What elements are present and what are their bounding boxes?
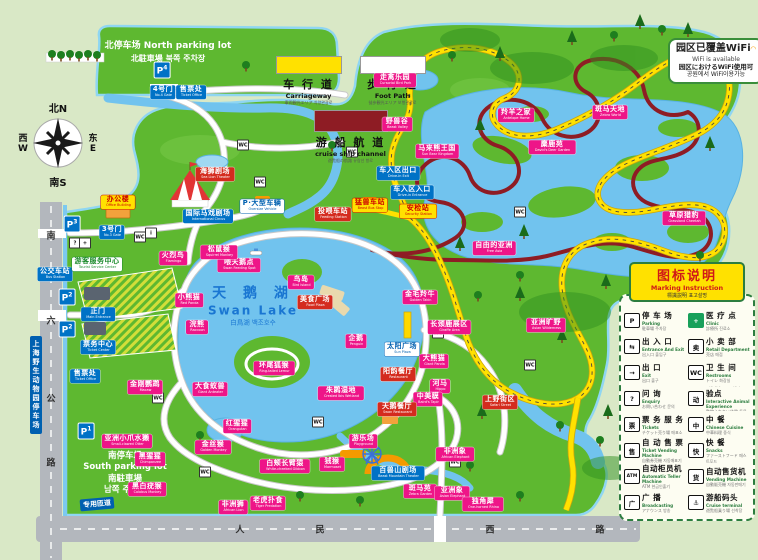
legend-item-sub: 自動販売機 자동판매기 [706, 482, 746, 488]
automatic-teller-machine-icon: ATM [624, 469, 640, 484]
map-label-en: Golden Takin [407, 299, 433, 303]
map-label-en: Sun Plaza [389, 351, 415, 355]
map-label-chimpanzee: 黑猩猩Chimpanzee [135, 452, 165, 466]
legend-item-vending-machine: 货自动售货机Vending Machine自動販売機 자동판매기 [688, 464, 750, 489]
map-label-en: Asian Wilderness [532, 327, 561, 331]
map-label-en: Ticket Office [74, 378, 95, 382]
poi-wc-13: WC [524, 360, 536, 371]
legend-item-en: Ticket Vending Machine [642, 448, 686, 458]
map-label-orangutan: 红猩猩Orangutan [223, 419, 251, 433]
map-label-en: Red Panda [179, 302, 198, 306]
tickets-icon: 票 [624, 417, 640, 432]
map-label-en: Office Building [106, 204, 131, 208]
map-label-en: Orangutan [227, 428, 246, 432]
wifi-line1: 园区已覆盖WiFi◠ [672, 43, 758, 56]
map-label-en: Small-clawed Otter [108, 443, 146, 447]
legend-item-cruise-terminal: ⚓游船码头Cruise terminal遊覧船乗り場 선착장 [688, 490, 750, 515]
map-label-crested-ibis-wetland: 朱鹮湿地Crested Ibis Wetland [318, 386, 364, 400]
parking-icon: P [624, 313, 640, 328]
legend-item-text: 票 务 服 务Ticketsチケット売り場 매표소 [642, 414, 683, 436]
map-label-white-cheeked-gibbon: 白颊长臂猿White-cheeked Gibbon [260, 459, 310, 473]
parking-badge-p3: P3 [64, 216, 81, 233]
icon-legend-title-en: Marking Instruction [631, 284, 743, 292]
vending-machine-icon: 货 [688, 469, 704, 484]
legend-item-cn: 广 播 [642, 492, 673, 503]
entrance-and-exit-icon: ⇆ [624, 339, 640, 354]
poi-wc-9: WC [514, 207, 526, 218]
map-label-free-asia: 自由的亚洲Free Asia [473, 241, 516, 255]
map-label-en: Hippo [434, 388, 447, 392]
map-label-david-s-deer-garden: 麋鹿苑David's Deer Garden [529, 140, 576, 154]
map-label-ring-tailed-lemur: 环尾狐猴Ring-tailed Lemur [254, 361, 295, 375]
map-label-en: Baird's Tapir [418, 401, 439, 405]
parking-badge-p2: P2 [59, 289, 76, 306]
legend-item-sub: アナウンス 방송 [642, 508, 673, 514]
legend-item-sub: 自動券売機 자동매표기 [642, 458, 686, 463]
map-label-en: Macaw [132, 389, 158, 393]
map-label-en: Feeding Station [320, 216, 347, 220]
legend-item-exit: →出 口Exit出口 출구 [624, 360, 686, 385]
wifi-line2: WiFi is available [672, 56, 758, 64]
legend-item-en: Retail Department [706, 347, 750, 352]
poi-wc-4: WC [254, 177, 266, 188]
carriageway-swatch [276, 56, 342, 74]
legend-item-sub: 遊覧船乗り場 선착장 [706, 508, 742, 514]
map-label-penguin: 企鹅Penguin [346, 334, 367, 348]
legend-item-restrooms: WC卫 生 间Restroomsトイレ 화장실 [688, 360, 750, 385]
wifi-notice: 园区已覆盖WiFi◠ WiFi is available 园区におけるWiFi使… [668, 38, 758, 84]
map-label-golden-monkey: 金丝猴Golden Monkey [195, 440, 231, 454]
legend-item-automatic-teller-machine: ATM自动柜员机Automatic Teller MachineATM 현금인출… [624, 464, 686, 489]
carriageway-label-cn: 车 行 道 [276, 76, 342, 92]
legend-item-sub: 診療所 진료소 [706, 326, 736, 332]
legend-item-text: 自动售货机Vending Machine自動販売機 자동판매기 [706, 466, 746, 488]
map-label-beast-bus-stop: 猛兽车站Beast Bus Stop [352, 198, 387, 212]
map-label-en: Beast Bus Stop [357, 207, 383, 211]
legend-item-sub: 駐車場 주차장 [642, 326, 672, 332]
icon-legend-title-cn: 图标说明 [631, 265, 743, 284]
map-label-ticket-center: 票务中心Ticket Center [81, 340, 116, 354]
map-label-swan-restaurant: 天鹅餐厅Swan Restaurant [378, 402, 417, 416]
map-label-en: Golden Monkey [200, 449, 226, 453]
map-label-en: Penguin [349, 343, 363, 347]
legend-item-sub: 出口 출구 [642, 378, 661, 384]
footpath-label-en: Foot Path [360, 92, 426, 100]
legend-item-text: 医 疗 点Clinic診療所 진료소 [706, 310, 736, 332]
enquiry-icon: ? [624, 391, 640, 406]
map-label-en: Main Entrance [86, 316, 110, 320]
map-label-en: Swan Feeding Spot [223, 267, 255, 271]
map-label-en: Cursorial Bird Park [379, 82, 410, 86]
map-label-drive-in-exit: 车入区出口Drive-in Exit [377, 166, 420, 180]
legend-item-cn: 出 入 口 [642, 336, 684, 347]
map-label-en: No.4 Gate [154, 94, 171, 98]
legend-item-chinese-cuisine: 中中 餐Chinese Cuisine中華料理 중식 [688, 412, 750, 437]
exit-icon: → [624, 365, 640, 380]
legend-item-interactive-animal-experience: 动动物互动体验点Interactive Animal Experience動物ふ… [688, 386, 750, 411]
map-label-raccoon: 浣熊Raccoon [186, 320, 208, 334]
legend-item-cn: 票 务 服 务 [642, 414, 683, 425]
carriageway-label-sub: 車両観光エリア 차량관광로 [276, 100, 342, 106]
map-label-asian-wilderness: 亚洲旷野Asian Wilderness [526, 318, 565, 332]
legend-item-sub: ATM 현금인출기 [642, 484, 686, 489]
map-label-bus-station: 公交车站Bus Station [38, 267, 73, 281]
map-label-en: Antelope Home [503, 117, 529, 121]
map-label-en: Drive-in Exit [382, 175, 414, 179]
icon-legend-title-sub: 標識説明 표고설명 [631, 292, 743, 299]
legend-item-text: 自 动 售 票Ticket Vending Machine自動券売機 자동매표기 [642, 438, 686, 463]
map-label-tiger-predation: 老虎扑食Tiger Predation [250, 496, 285, 510]
map-label-drive-in-entrance: 车入区入口Drive-in Entrance [391, 185, 434, 199]
map-label-oversize-vehicle: P·大型车辆Oversize Vehicle [240, 199, 284, 213]
map-label-food-plaza: 美食广场Food Plaza [298, 295, 333, 309]
legend-item-text: 停 车 场Parking駐車場 주차장 [642, 310, 672, 332]
legend-item-cn: 自 动 售 票 [642, 438, 686, 448]
map-label-en: Colobus Monkey [133, 491, 161, 495]
map-label-en: Giant Panda [424, 363, 445, 367]
map-label-small-clawed-otter: 亚洲小爪水獭Small-clawed Otter [102, 434, 152, 448]
map-label-hippo: 河马Hippo [430, 379, 450, 393]
map-label-safari-street: 上野街区Safari Street [483, 395, 518, 409]
restrooms-icon: WC [688, 365, 704, 380]
map-label-no-3-gate: 3号门No.3 Gate [99, 225, 124, 239]
map-label-security-station: 安检站Security Station [400, 204, 437, 218]
map-label-zebra-garden: 斑马苑Zebra Garden [404, 484, 437, 498]
map-label-red-panda: 小熊猫Red Panda [175, 293, 203, 307]
ramp-sign: 专用匝道 [80, 497, 115, 512]
map-label-macaw: 金刚鹦鹉Macaw [128, 380, 163, 394]
parking-badge-p2: P2 [59, 321, 76, 338]
legend-item-en: Vending Machine [706, 477, 746, 482]
legend-item-sub: チケット売り場 매표소 [642, 430, 683, 436]
wifi-line3: 园区におけるWiFi使用可 [672, 63, 758, 71]
ticket-vending-machine-icon: 售 [624, 443, 640, 458]
map-label-one-horned-rhino: 独角犀One-horned Rhino [462, 497, 503, 511]
north-parking-line1: 北停车场 North parking lot [105, 40, 232, 53]
west-road-char: 南 [46, 229, 55, 242]
legend-item-cn: 自动售货机 [706, 466, 746, 477]
legend-item-sub: トイレ 화장실 [706, 378, 736, 384]
map-label-en: No.3 Gate [103, 234, 120, 238]
legend-item-text: 小 卖 部Retail Department売店 매점 [706, 336, 750, 358]
icon-legend-grid: P停 车 场Parking駐車場 주차장+医 疗 点Clinic診療所 진료소⇆… [619, 294, 755, 521]
map-label-flamingo: 火烈鸟Flamingo [159, 251, 187, 265]
retail-department-icon: 卖 [688, 339, 704, 354]
legend-item-cn: 小 卖 部 [706, 336, 750, 347]
legend-item-en: Entrance And Exit [642, 347, 684, 352]
map-label-main-entrance: 正门Main Entrance [81, 307, 115, 321]
zoo-map: 北N 南S 西 W 东 E 北停车场 North parking lot 北駐車… [0, 0, 758, 560]
map-label-en: White-cheeked Gibbon [266, 468, 305, 472]
legend-item-text: 快 餐Snacksファーストフード 패스트푸드 [706, 438, 750, 463]
legend-item-clinic: +医 疗 点Clinic診療所 진료소 [688, 308, 750, 333]
chinese-cuisine-icon: 中 [688, 417, 704, 432]
wifi-line4: 공원에서 WiFi이용가능 [672, 71, 758, 79]
poi-wc-7: WC [312, 417, 324, 428]
map-label-en: Ticket Office [180, 94, 201, 98]
map-label-en: Tourist Service Center [78, 266, 116, 270]
map-label-cursorial-bird-park: 走禽乐园Cursorial Bird Park [374, 73, 416, 87]
map-label-giant-anteater: 大食蚁兽Giant Anteater [193, 382, 228, 396]
poi-wc-8: WC [199, 467, 211, 478]
legend-item-text: 出 入 口Entrance And Exit出入口 출입구 [642, 336, 684, 358]
legend-item-broadcasting: 广广 播Broadcastingアナウンス 방송 [624, 490, 686, 515]
legend-item-sub: 動物ふれあい体験 동물체험 [706, 409, 750, 412]
cruise-terminal-icon: ⚓ [688, 495, 704, 510]
map-label-en: Oversize Vehicle [246, 208, 279, 212]
legend-item-sub: お問い合わせ 문의 [642, 404, 675, 410]
map-label-feeding-station: 投喂车站Feeding Station [315, 207, 351, 221]
map-label-no-4-gate: 4号门No.4 Gate [150, 85, 175, 99]
map-label-en: Squirrel Monkey [205, 254, 232, 258]
map-label-en: Grassland Cheetah [668, 220, 700, 224]
south-road-char: 路 [595, 523, 604, 536]
map-label-ticket-office: 售票处Ticket Office [176, 85, 206, 99]
legend-item-text: 中 餐Chinese Cuisine中華料理 중식 [706, 414, 743, 436]
map-label-en: Zebra World [597, 114, 623, 118]
map-label-golden-takin: 金毛羚牛Golden Takin [403, 290, 438, 304]
legend-item-cn: 卫 生 间 [706, 362, 736, 373]
map-label-en: Zebra Garden [408, 493, 432, 497]
map-label-en: African Elephant [441, 456, 469, 460]
map-label-en: Security Station [404, 213, 431, 217]
legend-item-en: Cruise terminal [706, 503, 742, 508]
wifi-icon: ◠ [751, 45, 756, 53]
legend-item-text: 广 播Broadcastingアナウンス 방송 [642, 492, 673, 514]
legend-item-sub: 出入口 출입구 [642, 352, 684, 358]
map-label-en: Ticket Center [85, 349, 111, 353]
swan-lake-sub: 白鳥湖 백조호수 [208, 318, 298, 326]
map-label-international-circus: 国际马戏剧场International Circus [183, 209, 233, 223]
footpath-swatch [360, 56, 426, 74]
legend-carriageway: 车 行 道 Carriageway 車両観光エリア 차량관광로 [276, 56, 342, 106]
west-road-char: 六 [46, 314, 55, 327]
map-label-colobus-monkey: 黑白疣猴Colobus Monkey [128, 482, 166, 496]
legend-item-entrance-and-exit: ⇆出 入 口Entrance And Exit出入口 출입구 [624, 334, 686, 359]
map-label-en: Sea Lion Theater [201, 176, 230, 180]
legend-item-cn: 问 询 [642, 388, 675, 399]
legend-item-cn: 停 车 场 [642, 310, 672, 321]
legend-item-cn: 动物互动体验点 [706, 386, 750, 399]
interactive-animal-experience-icon: 动 [688, 391, 704, 406]
snacks-icon: 快 [688, 443, 704, 458]
map-label-en: Giant Anteater [197, 391, 223, 395]
map-label-en: One-horned Rhino [468, 506, 499, 510]
map-label-sun-plaza: 太阳广场Sun Plaza [385, 342, 420, 356]
legend-item-tickets: 票票 务 服 务Ticketsチケット売り場 매표소 [624, 412, 686, 437]
map-label-zebra-world: 斑马天地Zebra World [593, 105, 628, 119]
legend-item-text: 问 询Enquiryお問い合わせ 문의 [642, 388, 675, 410]
map-label-playground: 游乐场Playground [349, 434, 377, 448]
map-label-tourist-service-center: 游客服务中心Tourist Service Center [72, 257, 122, 271]
north-parking-caption: 北停车场 North parking lot 北駐車場 북쪽 주차장 [105, 40, 232, 64]
map-label-swan-feeding-spot: 喂天鹅点Swan Feeding Spot [217, 258, 260, 272]
map-label-african-lion: 非洲狮African Lion [219, 500, 248, 514]
legend-item-text: 游船码头Cruise terminal遊覧船乗り場 선착장 [706, 492, 742, 514]
legend-item-en: Interactive Animal Experience [706, 399, 750, 409]
swan-lake-caption: 天 鹅 湖 Swan Lake 白鳥湖 백조호수 [208, 286, 298, 327]
carriageway-label-en: Carriageway [276, 92, 342, 100]
icon-legend-panel: 图标说明 Marking Instruction 標識説明 표고설명 P停 车 … [619, 262, 755, 521]
map-label-marmoset: 狨猴Marmoset [320, 457, 345, 471]
map-label-en: Free Asia [478, 250, 510, 254]
map-label-en: Tiger Predation [255, 505, 281, 509]
map-label-en: Restaurant [385, 376, 411, 380]
map-label-en: Flamingo [163, 260, 182, 264]
map-label-en: African Lion [223, 509, 243, 513]
map-label-en: Drive-in Entrance [396, 194, 428, 198]
map-label-en: David's Deer Garden [534, 149, 569, 153]
legend-item-cn: 自动柜员机 [642, 464, 686, 474]
map-label-baird-s-tapir: 中美貘Baird's Tapir [413, 392, 442, 406]
broadcasting-icon: 广 [624, 495, 640, 510]
map-label-giraffe-area: 长颈鹿展区Giraffe Area [428, 320, 471, 334]
map-label-en: Crested Ibis Wetland [323, 395, 358, 399]
map-label-restaurant: 阳韵餐厅Restaurant [381, 367, 416, 381]
poi-wc-11: WC [152, 393, 164, 404]
map-label-beast-mountain-theater: 百兽山剧场Beast Mountain Theater [371, 466, 424, 480]
cruise-swatch [314, 110, 388, 132]
south-road-char: 民 [315, 523, 324, 536]
legend-item-cn: 中 餐 [706, 414, 743, 425]
south-road-char: 人 [235, 523, 244, 536]
map-label-en: International Circus [189, 218, 227, 222]
cruise-label-sub: 遊覧船の航路 유람선 항로 [248, 158, 453, 164]
legend-item-cn: 游船码头 [706, 492, 742, 503]
map-label-en: Playground [353, 443, 372, 447]
map-label-bird-island: 鸟岛Bird Island [288, 275, 314, 289]
legend-item-text: 自动柜员机Automatic Teller MachineATM 현금인출기 [642, 464, 686, 489]
map-label-en: Bus Station [42, 276, 68, 280]
map-label-ticket-office: 售票处Ticket Office [70, 369, 100, 383]
legend-item-enquiry: ?问 询Enquiryお問い合わせ 문의 [624, 386, 686, 411]
swan-lake-cn: 天 鹅 湖 [208, 286, 298, 304]
map-label-sun-bear-kingdom: 马来熊王国Sun Bear Kingdom [416, 144, 459, 158]
legend-item-retail-department: 卖小 卖 部Retail Department売店 매점 [688, 334, 750, 359]
map-label-en: Giraffe Area [433, 329, 465, 333]
parking-road-sign: 上海野生动物园停车场 [30, 336, 42, 434]
map-label-en: Asian Elephant [439, 495, 464, 499]
legend-item-text: 动物互动体验点Interactive Animal Experience動物ふれ… [706, 386, 750, 411]
map-label-beast-valley: 野兽谷Beast Valley [382, 117, 412, 131]
legend-item-cn: 医 疗 点 [706, 310, 736, 321]
map-label-en: Sun Bear Kingdom [421, 153, 453, 157]
map-label-african-elephant: 非洲象African Elephant [436, 447, 474, 461]
poi-i-3: i [145, 228, 157, 239]
map-overlay: 北停车场 North parking lot 北駐車場 북쪽 주차장 南停车场 … [0, 0, 758, 560]
west-road-char: 路 [46, 456, 55, 469]
legend-item-en: Chinese Cuisine [706, 425, 743, 430]
map-label-grassland-cheetah: 草原猎豹Grassland Cheetah [662, 211, 705, 225]
map-label-en: Chimpanzee [139, 461, 160, 465]
map-label-antelope-home: 羚羊之家Antelope Home [498, 108, 534, 122]
legend-item-cn: 出 口 [642, 362, 661, 373]
legend-item-en: Automatic Teller Machine [642, 474, 686, 484]
legend-item-text: 出 口Exit出口 출구 [642, 362, 661, 384]
clinic-icon: + [688, 313, 704, 328]
map-label-giant-panda: 大熊猫Giant Panda [419, 354, 448, 368]
map-label-en: Beast Mountain Theater [378, 475, 419, 479]
map-label-en: Safari Street [487, 404, 513, 408]
map-label-office-building: 办公楼Office Building [101, 195, 135, 209]
map-label-en: Marmoset [324, 466, 341, 470]
map-label-en: Beast Valley [387, 126, 408, 130]
parking-badge-p4: P4 [154, 62, 171, 79]
map-label-en: Food Plaza [302, 304, 328, 308]
legend-item-sub: ファーストフード 패스트푸드 [706, 453, 750, 464]
legend-item-snacks: 快快 餐Snacksファーストフード 패스트푸드 [688, 438, 750, 463]
legend-item-sub: 中華料理 중식 [706, 430, 743, 436]
legend-item-text: 卫 生 间Restroomsトイレ 화장실 [706, 362, 736, 384]
west-road-char: 公 [46, 392, 55, 405]
map-label-en: Ring-tailed Lemur [259, 370, 289, 374]
map-label-en: Bird Island [292, 284, 310, 288]
icon-legend-header: 图标说明 Marking Instruction 標識説明 표고설명 [629, 262, 745, 302]
south-road-char: 西 [485, 523, 494, 536]
legend-item-parking: P停 车 场Parking駐車場 주차장 [624, 308, 686, 333]
poi-item-1: + [79, 238, 91, 249]
footpath-label-sub: 徒歩観光エリア 보행관광로 [360, 100, 426, 106]
legend-item-en: Broadcasting [642, 503, 673, 508]
map-label-en: Swan Restaurant [383, 411, 412, 415]
map-label-sea-lion-theater: 海狮剧场Sea Lion Theater [196, 167, 235, 181]
map-label-squirrel-monkey: 松鼠猴Squirrel Monkey [200, 245, 237, 259]
legend-item-ticket-vending-machine: 售自 动 售 票Ticket Vending Machine自動券売機 자동매표… [624, 438, 686, 463]
legend-item-sub: 売店 매점 [706, 352, 750, 358]
swan-lake-en: Swan Lake [208, 303, 298, 318]
legend-item-cn: 快 餐 [706, 438, 750, 448]
parking-badge-p1: P1 [78, 423, 95, 440]
map-label-en: Raccoon [190, 329, 204, 333]
